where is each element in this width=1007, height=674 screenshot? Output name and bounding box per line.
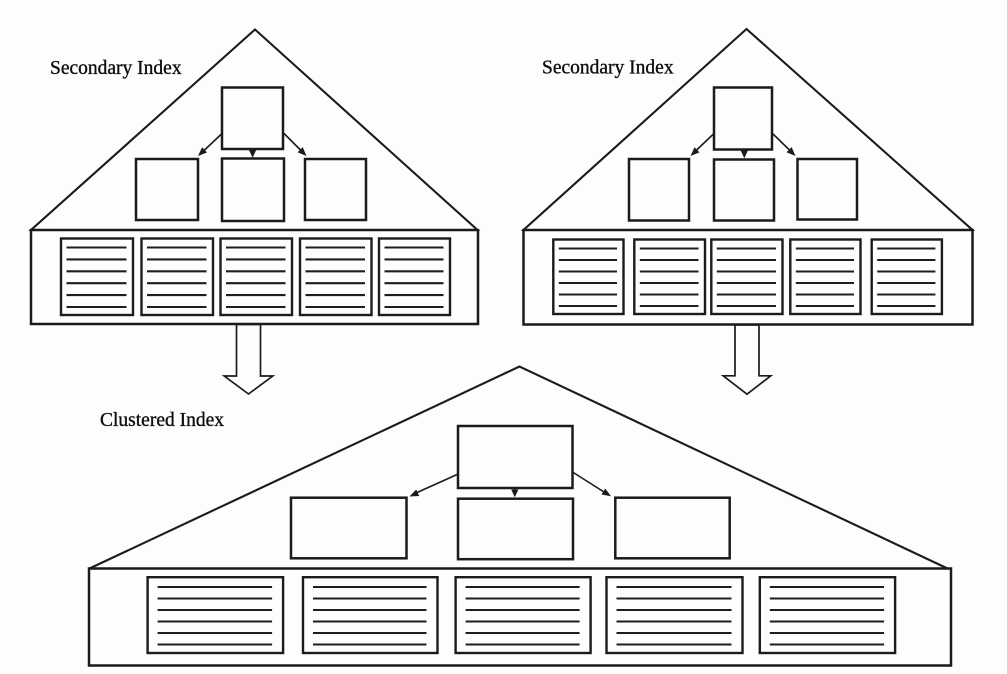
svg-text:Secondary Index: Secondary Index: [50, 58, 182, 79]
svg-text:Clustered Index: Clustered Index: [100, 410, 224, 431]
svg-text:Secondary Index: Secondary Index: [542, 58, 674, 79]
